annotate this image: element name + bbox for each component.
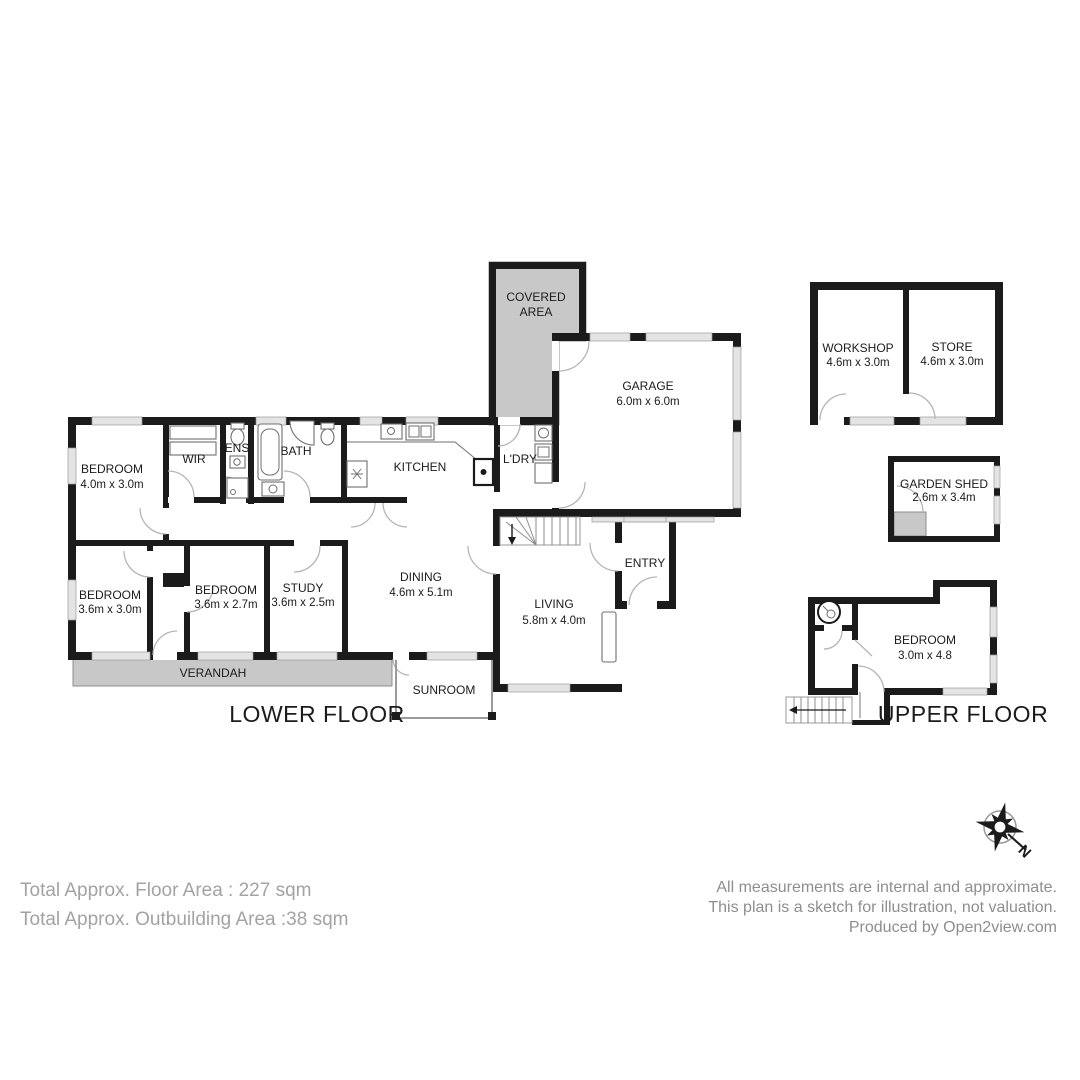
- stairs-lower-icon: [500, 517, 580, 545]
- toilet-icon: [321, 423, 334, 445]
- room-label-sunroom: SUNROOM: [413, 683, 476, 697]
- compass-icon: N: [970, 797, 1034, 861]
- room-dims-bedroom2: 3.6m x 3.0m: [78, 604, 141, 616]
- room-dims-garden-shed: 2.6m x 3.4m: [912, 492, 975, 504]
- room-label-bedroom1: BEDROOM: [81, 462, 143, 476]
- corner-shower-icon: [290, 421, 314, 445]
- dishwasher-icon: [381, 424, 402, 439]
- north-label: N: [1015, 842, 1035, 862]
- stove-icon: [474, 459, 493, 485]
- room-label-living: LIVING: [534, 597, 573, 611]
- room-dims-bedroom-upper: 3.0m x 4.8: [898, 650, 952, 662]
- room-dims-bedroom1: 4.0m x 3.0m: [80, 479, 143, 491]
- room-label-bedroom-upper: BEDROOM: [894, 633, 956, 647]
- room-label-store: STORE: [931, 340, 972, 354]
- bathtub-icon: [258, 424, 282, 480]
- room-dims-study: 3.6m x 2.5m: [271, 597, 334, 609]
- fridge-icon: [347, 461, 367, 487]
- counter-edge: [347, 442, 477, 460]
- room-label-verandah: VERANDAH: [180, 666, 247, 680]
- floorplan-page: N BEDROOM 4.0m x 3.0m WIR ENS BATH KITCH…: [0, 0, 1080, 1080]
- room-label-workshop: WORKSHOP: [822, 341, 893, 355]
- door-gaps-upper: [818, 417, 884, 695]
- room-label-entry: ENTRY: [625, 556, 665, 570]
- room-label-study: STUDY: [283, 581, 324, 595]
- room-dims-workshop: 4.6m x 3.0m: [826, 357, 889, 369]
- door-arcs-upper: [820, 393, 935, 718]
- basin-icon: [230, 456, 245, 468]
- sink-icon: [406, 423, 434, 440]
- room-dims-bedroom3: 3.6m x 2.7m: [194, 599, 257, 611]
- room-label-ens: ENS: [225, 441, 250, 455]
- shower-round-icon: [818, 601, 840, 623]
- floorplan-svg: N BEDROOM 4.0m x 3.0m WIR ENS BATH KITCH…: [0, 0, 1080, 1080]
- room-dims-dining: 4.6m x 5.1m: [389, 587, 452, 599]
- footer-outbuilding-area: Total Approx. Outbuilding Area :38 sqm: [20, 909, 348, 930]
- room-label-dining: DINING: [400, 570, 442, 584]
- room-label-covered-area-2: AREA: [520, 305, 553, 319]
- room-label-ldry: L'DRY: [503, 452, 537, 466]
- footer: Total Approx. Floor Area : 227 sqm Total…: [20, 879, 1057, 936]
- room-label-kitchen: KITCHEN: [394, 460, 447, 474]
- shower-icon: [227, 478, 248, 498]
- footer-floor-area: Total Approx. Floor Area : 227 sqm: [20, 880, 312, 901]
- room-dims-garage: 6.0m x 6.0m: [616, 396, 679, 408]
- room-dims-store: 4.6m x 3.0m: [920, 356, 983, 368]
- room-label-covered-area-1: COVERED: [506, 290, 566, 304]
- footer-disclaimer-1: All measurements are internal and approx…: [716, 879, 1057, 896]
- room-label-wir: WIR: [182, 452, 206, 466]
- room-label-bedroom3: BEDROOM: [195, 583, 257, 597]
- walls-lower: [68, 262, 741, 692]
- upper-floor-title: UPPER FLOOR: [878, 701, 1048, 727]
- covered-area-shape: [489, 262, 586, 425]
- room-label-garden-shed: GARDEN SHED: [900, 477, 988, 491]
- room-label-bedroom2: BEDROOM: [79, 588, 141, 602]
- lower-floor-title: LOWER FLOOR: [229, 701, 404, 727]
- room-label-bath: BATH: [280, 444, 311, 458]
- washer-icon: [535, 425, 552, 483]
- room-dims-living: 5.8m x 4.0m: [522, 615, 585, 627]
- footer-produced-by: Produced by Open2view.com: [849, 919, 1057, 936]
- shed-porch-shape: [894, 512, 926, 536]
- stairs-upper-icon: [786, 697, 852, 723]
- footer-disclaimer-2: This plan is a sketch for illustration, …: [708, 899, 1057, 916]
- fireplace-icon: [602, 612, 616, 662]
- wardrobe-icon: [170, 426, 216, 455]
- room-label-garage: GARAGE: [622, 379, 673, 393]
- vanity-icon: [262, 482, 284, 496]
